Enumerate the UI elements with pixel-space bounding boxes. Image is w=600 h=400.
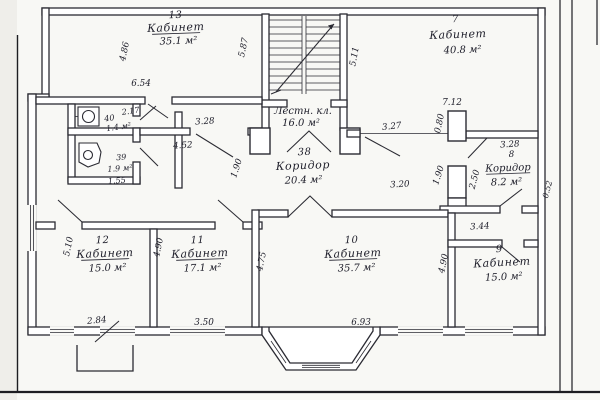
stair-wall-left	[262, 14, 269, 130]
staircase-label: Лестн. кл. 16.0 м²	[273, 106, 332, 129]
pier-corridor8	[448, 166, 466, 198]
room-9-name: Кабинет	[472, 255, 531, 271]
stair-treads	[269, 16, 340, 94]
window-room9-b	[465, 326, 513, 336]
dim-stair-left: 5.87	[237, 37, 251, 59]
corridor-38-area: 20.4 м²	[283, 174, 322, 186]
wall-room10-room9	[448, 213, 455, 327]
dim-stair-right: 5.11	[348, 46, 361, 67]
window-room12-b	[100, 326, 135, 336]
door-room11	[218, 200, 243, 222]
wall-wc39-east	[133, 162, 140, 184]
room-9-label: 9 Кабинет 15.0 м²	[471, 243, 531, 285]
wall-wc40-east-b	[133, 128, 140, 142]
dim-corridor8-width: 3.28	[500, 139, 521, 150]
room-7-number: 7	[452, 14, 459, 25]
wall-room9-north-a	[448, 240, 502, 247]
room-10-area: 35.7 м²	[337, 262, 375, 274]
room-13-area: 35.1 м²	[159, 35, 197, 47]
window-west	[27, 205, 37, 251]
room-11-number: 11	[190, 235, 204, 246]
room-7-name: Кабинет	[428, 27, 487, 42]
corridor-8-label: 8 Коридор 8.2 м²	[484, 149, 532, 189]
wall-room7-south-b	[466, 131, 538, 138]
corridor-8-area: 8.2 м²	[491, 177, 523, 189]
door-wc40	[140, 106, 156, 120]
wall-room13-south-a	[36, 97, 145, 104]
staircase-name: Лестн. кл.	[273, 106, 332, 117]
wall-room10-north-a	[258, 210, 288, 217]
dim-corridor8-pier: 1.90	[431, 164, 447, 186]
wall-lobby-a	[140, 128, 190, 135]
dim-lobby-opening: 4.52	[172, 140, 194, 151]
wall-wc-west	[68, 104, 75, 182]
room-12-area: 15.0 м²	[88, 262, 126, 274]
double-door-room10	[288, 196, 332, 217]
wc-39-area: 1.9 м²	[107, 163, 133, 174]
stair-wall-right	[340, 14, 347, 130]
dim-room13-width: 6.54	[131, 79, 151, 89]
wall-corridor8-south-b	[522, 206, 538, 213]
pier-room7	[448, 111, 466, 141]
dim-corridor8-side: 2.50	[467, 168, 482, 191]
door-corridor8	[468, 138, 487, 158]
door-wc39	[140, 148, 158, 166]
bay-window	[262, 327, 380, 370]
corridor-38-number: 38	[297, 147, 311, 158]
floor-plan-drawing: 13 Кабинет 35.1 м² 7 Кабинет 40.8 м² Лес…	[0, 0, 600, 400]
room-10-number: 10	[344, 235, 358, 246]
floor-plan-scan: 13 Кабинет 35.1 м² 7 Кабинет 40.8 м² Лес…	[0, 0, 600, 400]
wall-room7-south-a	[347, 130, 360, 137]
wall-wc-south	[68, 177, 140, 184]
dim-room11-window: 3.50	[194, 318, 214, 328]
corridor-38-label: 38 Коридор 20.4 м²	[274, 146, 330, 187]
dim-room13-side: 4.86	[118, 41, 132, 64]
porch-outline	[77, 345, 133, 371]
room-9-number: 9	[496, 244, 504, 255]
wc-40-number: 40	[103, 113, 115, 123]
staircase-area: 16.0 м²	[282, 118, 320, 129]
wall-east	[538, 8, 545, 335]
scan-left-margin	[0, 0, 17, 400]
door-room12	[58, 200, 82, 222]
toilet-icon	[79, 143, 101, 167]
wall-room9-north-b	[524, 240, 538, 247]
dim-room10-width: 6.93	[351, 318, 371, 328]
stair-direction-arrow	[271, 24, 334, 94]
dim-room12-side: 5.10	[62, 236, 76, 258]
sink-icon	[75, 107, 99, 126]
dim-room7-pier: 0.80	[433, 113, 447, 135]
wall-row-north-a	[36, 222, 55, 229]
corridor-8-number: 8	[509, 150, 515, 160]
room-7-area: 40.8 м²	[442, 44, 481, 56]
room-11-label: 11 Кабинет 17.1 м²	[170, 234, 230, 275]
dim-lobby-top: 3.28	[195, 116, 216, 127]
dim-room7-width: 7.12	[442, 98, 462, 108]
dim-room9-lobby: 3.44	[470, 221, 490, 232]
room-13-number: 13	[168, 10, 182, 21]
stair-wall-south-right	[331, 100, 347, 107]
wc-39-number: 39	[116, 153, 127, 163]
window-room9-a	[398, 326, 443, 336]
door-corridor8-south	[500, 189, 522, 206]
room-12-number: 12	[95, 235, 109, 246]
room-10-label: 10 Кабинет 35.7 м²	[323, 234, 383, 275]
room-7-label: 7 Кабинет 40.8 м²	[428, 13, 488, 57]
fixtures	[75, 107, 101, 167]
wall-row-north-b	[82, 222, 215, 229]
pier-corridor-left	[250, 128, 270, 154]
door-room7	[365, 137, 400, 156]
wall-west-upper	[42, 8, 49, 100]
wall-corridor8-south-a	[440, 206, 500, 213]
window-room12-a	[50, 326, 74, 336]
door-lobby-corridor	[196, 134, 233, 157]
wall-room13-south-b	[172, 97, 262, 104]
wall-north	[42, 8, 545, 15]
room-12-label: 12 Кабинет 15.0 м²	[75, 234, 135, 275]
dim-room7-opening: 3.27	[382, 121, 403, 133]
corridor-38-name: Коридор	[275, 158, 331, 173]
room-11-area: 17.1 м²	[183, 262, 221, 274]
room-9-area: 15.0 м²	[485, 271, 523, 284]
dim-corridor-left-pier: 1.90	[229, 157, 245, 179]
wall-room10-north-b	[332, 210, 448, 217]
wc-39-width: 1.55	[108, 176, 126, 186]
dim-room12-window: 2.84	[86, 315, 107, 327]
dim-corridor-opening: 3.20	[390, 179, 410, 190]
